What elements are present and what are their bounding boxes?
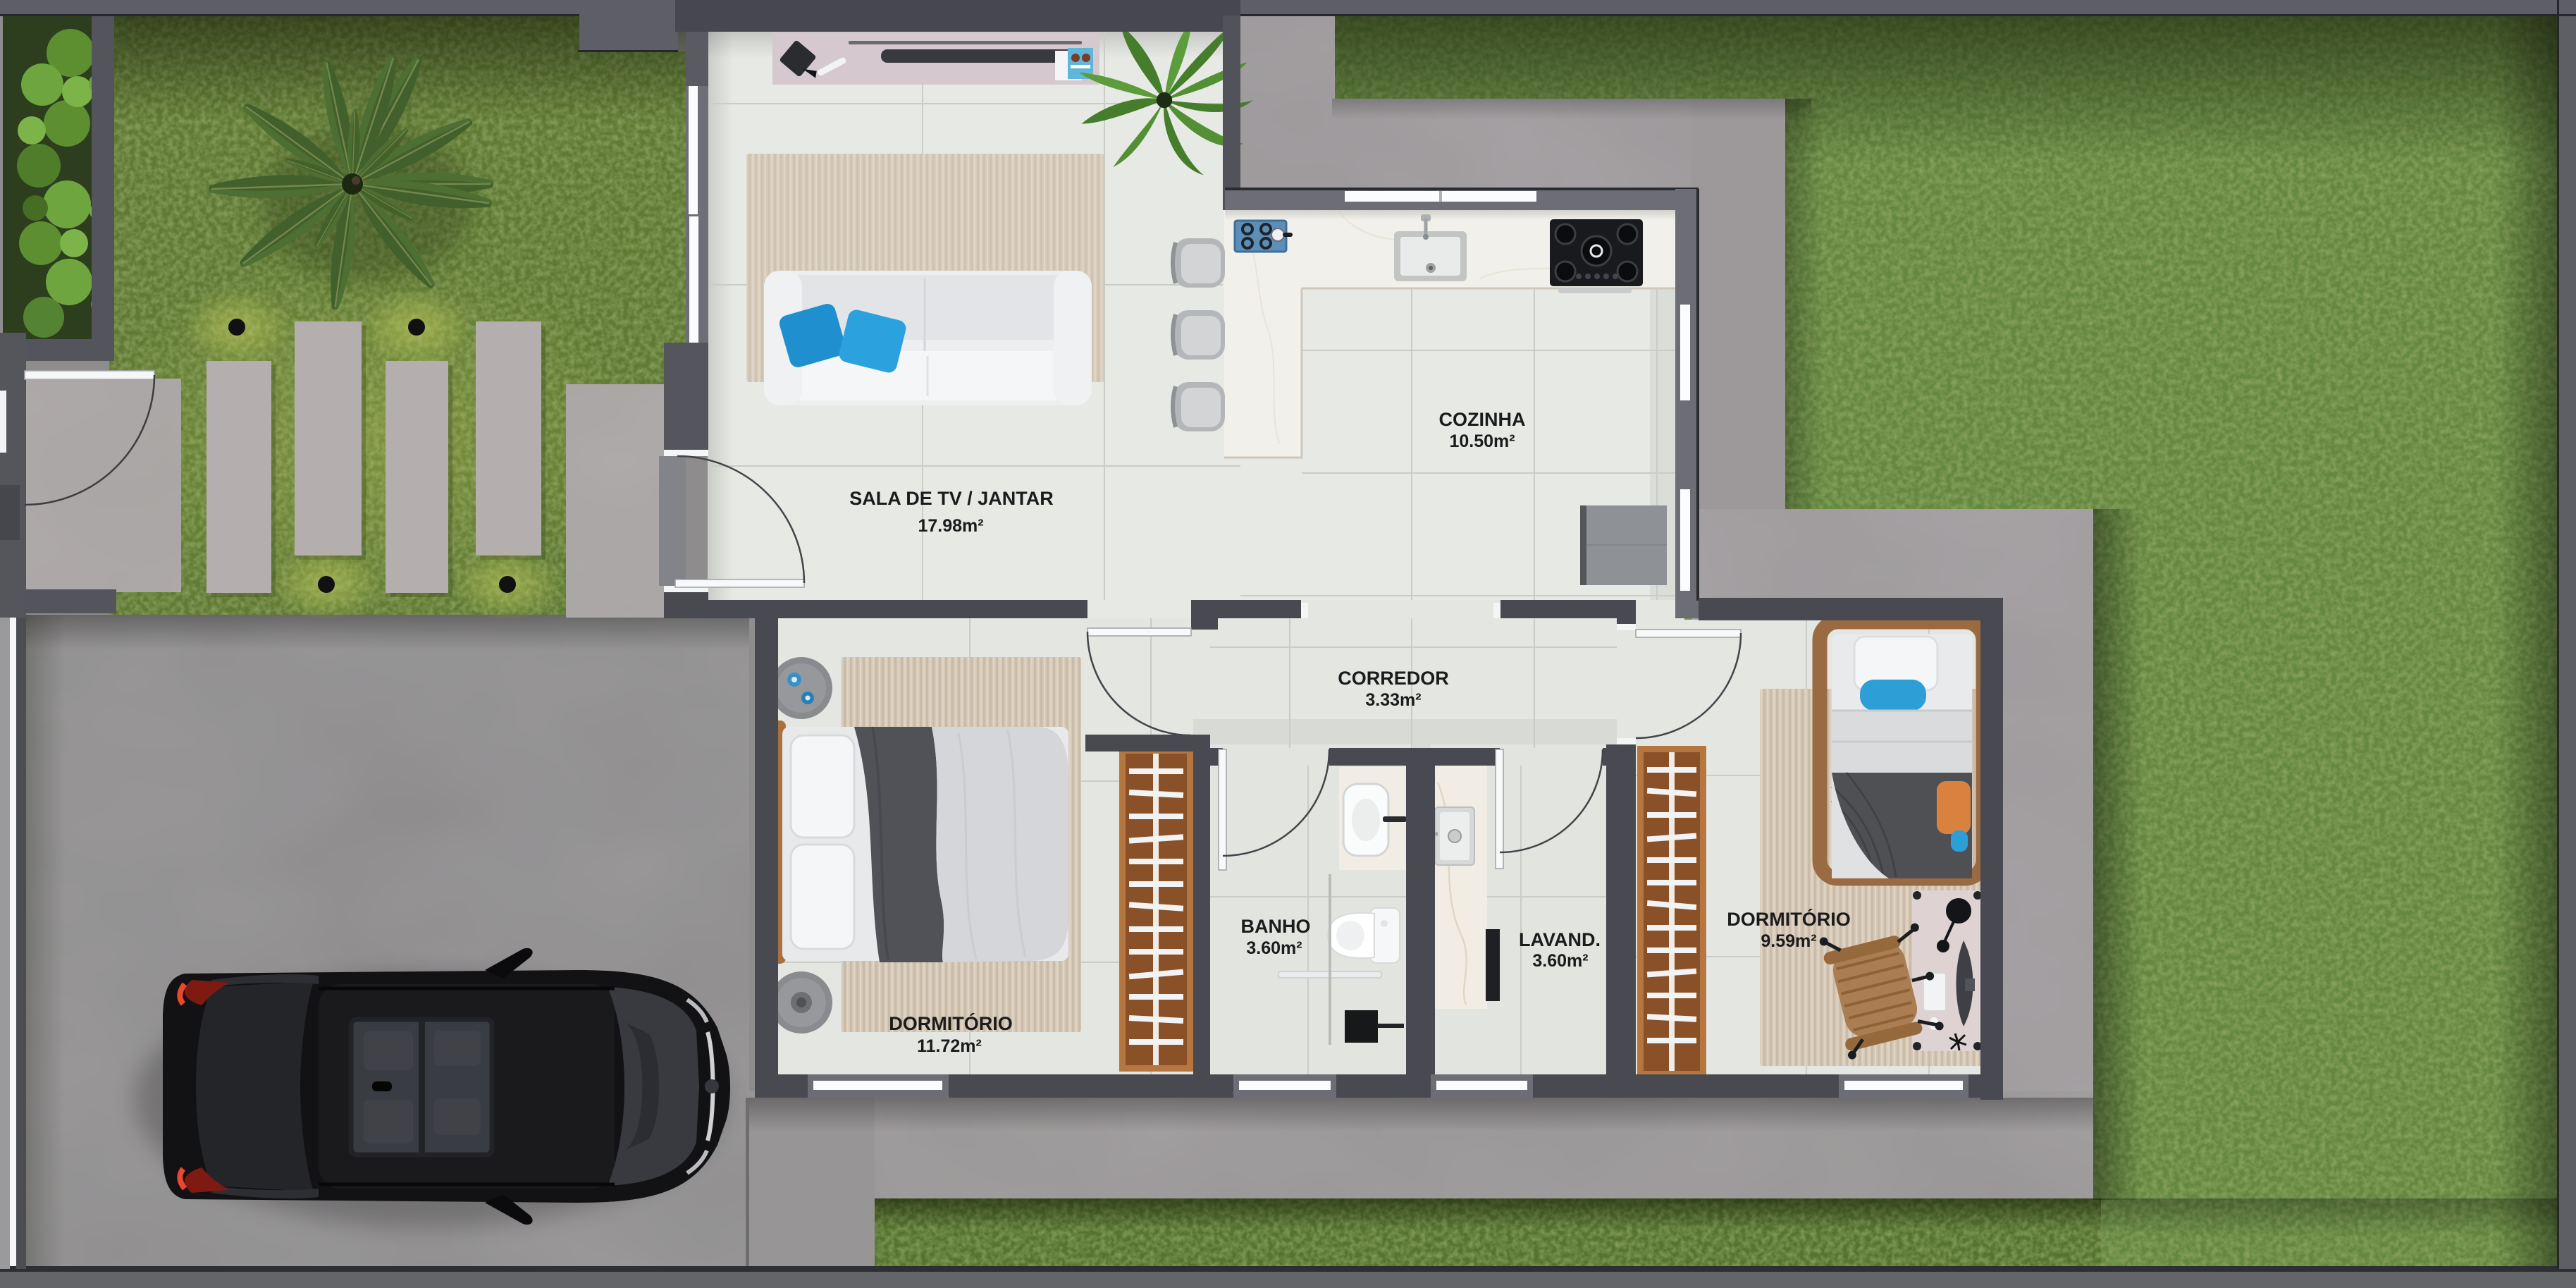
svg-text:DORMITÓRIO: DORMITÓRIO — [1727, 908, 1851, 930]
svg-text:CORREDOR: CORREDOR — [1338, 668, 1449, 689]
svg-text:11.72m²: 11.72m² — [917, 1036, 982, 1056]
svg-text:3.60m²: 3.60m² — [1246, 938, 1302, 958]
svg-text:3.60m²: 3.60m² — [1532, 951, 1588, 971]
svg-text:SALA DE TV / JANTAR: SALA DE TV / JANTAR — [849, 488, 1054, 509]
svg-text:DORMITÓRIO: DORMITÓRIO — [889, 1012, 1013, 1034]
svg-text:9.59m²: 9.59m² — [1761, 931, 1816, 951]
svg-text:3.33m²: 3.33m² — [1365, 690, 1421, 710]
svg-text:10.50m²: 10.50m² — [1449, 431, 1515, 451]
svg-text:17.98m²: 17.98m² — [918, 516, 983, 536]
svg-text:BANHO: BANHO — [1241, 916, 1311, 937]
svg-text:LAVAND.: LAVAND. — [1519, 929, 1601, 950]
svg-text:COZINHA: COZINHA — [1439, 409, 1526, 430]
